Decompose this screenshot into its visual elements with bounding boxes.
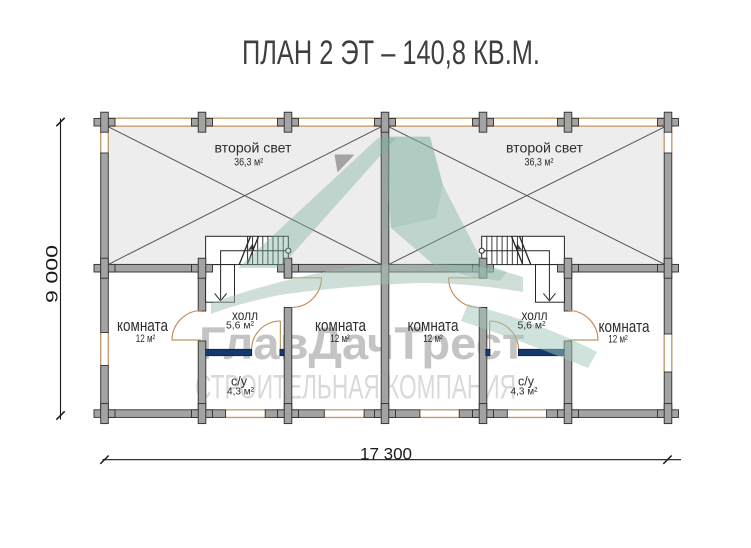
svg-text:17 300: 17 300 (360, 444, 412, 463)
svg-text:5,6 м²: 5,6 м² (226, 320, 254, 332)
svg-text:12 м²: 12 м² (423, 333, 443, 345)
svg-text:второй свет: второй свет (215, 140, 293, 156)
svg-text:36,3 м²: 36,3 м² (234, 157, 263, 169)
svg-text:12 м²: 12 м² (136, 333, 156, 345)
svg-text:9 000: 9 000 (43, 245, 62, 303)
svg-text:36,3 м²: 36,3 м² (525, 157, 554, 169)
svg-text:ПЛАН 2 ЭТ – 140,8 КВ.М.: ПЛАН 2 ЭТ – 140,8 КВ.М. (242, 34, 540, 72)
svg-text:4,3 м²: 4,3 м² (227, 386, 254, 398)
svg-text:5,6 м²: 5,6 м² (518, 320, 546, 332)
svg-text:4,3 м²: 4,3 м² (511, 386, 538, 398)
svg-text:12 м²: 12 м² (330, 333, 350, 345)
svg-text:второй свет: второй свет (506, 140, 584, 156)
svg-text:12 м²: 12 м² (608, 334, 628, 346)
